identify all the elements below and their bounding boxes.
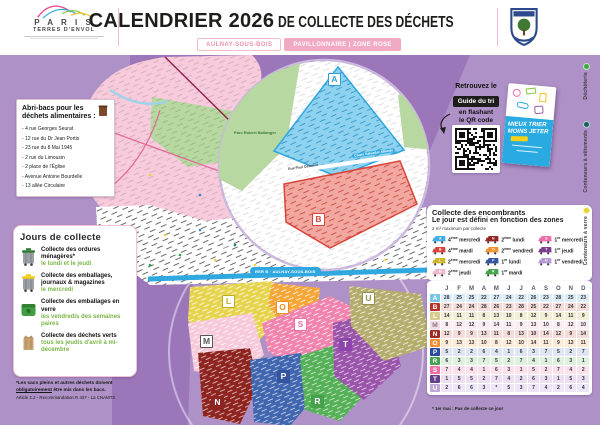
calendar-cell-M-3: 9 — [478, 321, 489, 329]
clothes-container-label: Conteneurs à vêtements — [583, 130, 589, 192]
collection-item-schedule: les vendredis des semaines paires — [41, 314, 130, 328]
brand-tagline-bar — [24, 36, 104, 37]
abri-bacs-address-list: 4 rue Georges Seurat 12 rue du Dr Jean P… — [22, 125, 109, 192]
calendar-cell-B-2: 24 — [466, 303, 477, 311]
calendar-cell-N-9: 12 — [553, 330, 564, 338]
calendar-cell-M-8: 10 — [540, 321, 551, 329]
calendar-cell-M-1: 12 — [453, 321, 464, 329]
calendar-row-M: M81212914119131081210 — [430, 321, 589, 329]
calendar-cell-B-8: 22 — [540, 303, 551, 311]
calendar-cell-S-11: 2 — [577, 366, 589, 374]
calendar-cell-O-8: 11 — [540, 339, 551, 347]
calendar-cell-S-4: 6 — [491, 366, 502, 374]
calendar-cell-R-2: 3 — [466, 357, 477, 365]
encombrants-legend-item-N: N2ème lundi — [485, 234, 537, 245]
calendar-cell-U-5: 5 — [503, 384, 514, 392]
calendar-cell-A-7: 26 — [528, 294, 539, 302]
calendar-cell-T-3: 2 — [478, 375, 489, 383]
truck-icon-M: M — [432, 268, 446, 277]
calendar-cell-A-6: 22 — [515, 294, 526, 302]
calendar-cell-M-6: 9 — [515, 321, 526, 329]
booklet-tag — [511, 136, 528, 141]
calendar-corner — [430, 284, 440, 293]
calendar-cell-L-3: 8 — [478, 312, 489, 320]
map-zone-badge-U: U — [362, 292, 375, 305]
calendar-cell-R-1: 3 — [453, 357, 464, 365]
calendar-cell-B-7: 25 — [528, 303, 539, 311]
calendar-cell-B-5: 23 — [503, 303, 514, 311]
calendar-cell-B-6: 28 — [515, 303, 526, 311]
calendar-cell-R-10: 3 — [565, 357, 576, 365]
calendar-cell-N-8: 14 — [540, 330, 551, 338]
truck-icon-P: P — [485, 257, 499, 266]
calendar-cell-U-1: 6 — [453, 384, 464, 392]
encombrants-legend-label: 1er lundi — [501, 258, 520, 266]
calendar-cell-N-10: 9 — [565, 330, 576, 338]
calendar-cell-U-0: 2 — [441, 384, 452, 392]
calendar-cell-T-2: 5 — [466, 375, 477, 383]
encombrants-legend-item-M: M2ème jeudi — [432, 267, 484, 278]
booklet-doodles — [506, 83, 557, 121]
clothes-container-icon — [583, 121, 590, 128]
calendar-cell-P-10: 2 — [565, 348, 576, 356]
calendar-cell-N-6: 13 — [515, 330, 526, 338]
encombrants-legend-label: 2ème jeudi — [448, 269, 471, 277]
calendar-zone-label-S: S — [430, 366, 440, 374]
encombrants-legend-item-L: L2ème mercredi — [432, 256, 484, 267]
calendar-cell-P-1: 2 — [453, 348, 464, 356]
calendar-cell-L-11: 9 — [577, 312, 589, 320]
calendar-cell-O-7: 14 — [528, 339, 539, 347]
calendar-row-B: B272424282623282522272422 — [430, 303, 589, 311]
calendar-cell-T-1: 5 — [453, 375, 464, 383]
truck-icon-S: S — [538, 235, 552, 244]
calendar-cell-R-11: 1 — [577, 357, 589, 365]
calendar-cell-M-10: 12 — [565, 321, 576, 329]
calendar-zone-label-U: U — [430, 384, 440, 392]
map-zone-badge-T: T — [339, 338, 352, 351]
map-zone-badge-A: A — [328, 73, 341, 86]
page-title: CALENDRIER 2026 — [89, 10, 275, 33]
calendar-cell-L-2: 11 — [466, 312, 477, 320]
calendar-month-4: M — [491, 284, 502, 293]
encombrants-legend-label: 2ème lundi — [501, 236, 524, 244]
collection-days-title: Jours de collecte — [20, 232, 130, 243]
footnote-line2: être mis dans les bacs. — [52, 388, 106, 393]
calendar-zone-label-A: A — [430, 294, 440, 302]
map-zone-badge-B: B — [312, 213, 325, 226]
calendar-month-10: N — [565, 284, 576, 293]
calendar-cell-N-0: 12 — [441, 330, 452, 338]
grey-bin-yellow-lid-icon — [20, 273, 37, 292]
calendar-cell-A-3: 22 — [478, 294, 489, 302]
truck-icon-O: O — [485, 246, 499, 255]
glass-container-label: Conteneurs à verre — [583, 216, 589, 265]
calendar-zone-label-R: R — [430, 357, 440, 365]
calendar-cell-M-11: 10 — [577, 321, 589, 329]
calendar-zone-label-T: T — [430, 375, 440, 383]
calendar-cell-T-10: 5 — [565, 375, 576, 383]
calendar-cell-S-5: 3 — [503, 366, 514, 374]
calendar-cell-O-2: 13 — [466, 339, 477, 347]
calendar-cell-B-3: 28 — [478, 303, 489, 311]
calendar-cell-M-9: 8 — [553, 321, 564, 329]
header-divider-right — [497, 8, 498, 46]
collection-days-panel: Jours de collecte Collecte des ordures m… — [13, 225, 137, 377]
collection-item-title: Collecte des emballages, journaux & maga… — [41, 273, 130, 287]
calendar-cell-U-11: 4 — [577, 384, 589, 392]
calendar-cell-L-1: 11 — [453, 312, 464, 320]
footnote-line3: Article 2.2 - Recommandation R 437 - La … — [16, 395, 115, 400]
truck-icon-N: N — [485, 235, 499, 244]
legend-conteneurs-verre: Conteneurs à verre — [577, 207, 595, 265]
qr-code — [452, 125, 500, 173]
title-block: CALENDRIER 2026 DE COLLECTE DES DÉCHETS … — [125, 10, 473, 51]
calendar-cell-R-8: 1 — [540, 357, 551, 365]
calendar-cell-T-8: 3 — [540, 375, 551, 383]
encombrants-legend-label: 1er jeudi — [554, 247, 573, 255]
bulky-waste-title: Collecte des encombrants — [432, 209, 587, 217]
calendar-month-3: A — [478, 284, 489, 293]
calendar-zone-label-O: O — [430, 339, 440, 347]
legend-dechetterie: Déchèterie — [577, 63, 595, 100]
main-area: Parc Robert Ballanger Rue Paul Cézanne C… — [0, 55, 600, 425]
park-label: Parc Robert Ballanger — [234, 131, 276, 136]
calendar-cell-B-9: 27 — [553, 303, 564, 311]
calendar-cell-P-4: 4 — [491, 348, 502, 356]
encombrants-legend-label: 1er mardi — [501, 269, 522, 277]
calendar-cell-B-1: 24 — [453, 303, 464, 311]
calendar-row-O: O913131081210141191311 — [430, 339, 589, 347]
calendar-cell-B-0: 27 — [441, 303, 452, 311]
abri-address: Avenue Antoine Bourdelle — [22, 173, 109, 183]
left-footnote: *Les sacs pleins et autres déchets doive… — [16, 380, 141, 402]
calendar-cell-B-4: 26 — [491, 303, 502, 311]
green-glass-container-icon — [20, 299, 37, 318]
calendar-cell-L-5: 10 — [503, 312, 514, 320]
calendar-cell-O-10: 13 — [565, 339, 576, 347]
calendar-cell-A-11: 23 — [577, 294, 589, 302]
calendar-cell-O-4: 8 — [491, 339, 502, 347]
abri-address: 2 place de l'Église — [22, 163, 109, 173]
calendar-row-L: L14111181310812914119 — [430, 312, 589, 320]
calendar-cell-O-11: 11 — [577, 339, 589, 347]
calendar-footnote: * 1er mai : Pas de collecte ce jour — [432, 406, 503, 411]
collection-item-household: Collecte des ordures ménagères* le lundi… — [20, 247, 130, 268]
calendar-cell-L-7: 12 — [528, 312, 539, 320]
calendar-cell-U-2: 6 — [466, 384, 477, 392]
calendar-cell-U-10: 6 — [565, 384, 576, 392]
calendar-zone-label-M: M — [430, 321, 440, 329]
dechetterie-icon — [583, 63, 590, 70]
truck-icon-T: T — [538, 246, 552, 255]
truck-icon-L: L — [432, 257, 446, 266]
calendar-cell-O-1: 13 — [453, 339, 464, 347]
calendar-cell-U-8: 4 — [540, 384, 551, 392]
encombrants-legend-label: 4ème mercredi — [448, 236, 480, 244]
calendar-cell-M-7: 13 — [528, 321, 539, 329]
calendar-cell-P-5: 1 — [503, 348, 514, 356]
collection-item-title: Collecte des emballages en verre — [41, 299, 130, 313]
calendar-cell-N-1: 9 — [453, 330, 464, 338]
guide-line1: Retrouvez le — [447, 83, 505, 90]
rer-b-line-label: RER B · AULNAY-SOUS-BOIS — [250, 267, 321, 275]
map-zone-badge-N: N — [211, 396, 224, 409]
calendar-cell-A-1: 25 — [453, 294, 464, 302]
truck-icon-A: A — [432, 235, 446, 244]
collection-item-title: Collecte des déchets verts — [41, 333, 130, 340]
glass-container-icon — [583, 207, 590, 214]
calendar-cell-R-0: 6 — [441, 357, 452, 365]
calendar-zone-label-N: N — [430, 330, 440, 338]
map-zone-badge-M: M — [200, 335, 213, 348]
booklet-title: MIEUX TRIER MOINS JETER — [508, 122, 550, 136]
calendar-month-8: S — [540, 284, 551, 293]
calendar-cell-U-4: * — [491, 384, 502, 392]
footnote-line1: *Les sacs pleins et autres déchets doive… — [16, 381, 113, 386]
abri-address: 2 rue du Limousin — [22, 154, 109, 164]
calendar-cell-P-8: 7 — [540, 348, 551, 356]
calendar-month-0: J — [441, 284, 452, 293]
calendar-month-9: O — [553, 284, 564, 293]
calendar-cell-M-2: 12 — [466, 321, 477, 329]
brand-tagline-bar2 — [30, 38, 98, 39]
calendar-cell-R-4: 5 — [491, 357, 502, 365]
calendar-month-header: JFMAMJJASOND — [430, 284, 589, 293]
calendar-row-A: A282525222724222623282523 — [430, 294, 589, 302]
calendar-cell-L-0: 14 — [441, 312, 452, 320]
calendar-cell-S-8: 2 — [540, 366, 551, 374]
abri-address: 13 allée Circulaire — [22, 182, 109, 192]
calendar-cell-B-11: 22 — [577, 303, 589, 311]
abri-address: 4 rue Georges Seurat — [22, 125, 109, 135]
encombrants-legend-label: 4ème mardi — [448, 247, 473, 255]
calendar-cell-P-7: 3 — [528, 348, 539, 356]
abri-bacs-title: Abri-bacs pour les déchets alimentaires … — [22, 105, 102, 121]
calendar-cell-S-10: 4 — [565, 366, 576, 374]
calendar-month-2: M — [466, 284, 477, 293]
abri-bacs-panel: Abri-bacs pour les déchets alimentaires … — [16, 99, 115, 197]
city-badge: AULNAY-SOUS-BOIS — [197, 38, 281, 51]
calendar-cell-P-3: 6 — [478, 348, 489, 356]
encombrants-legend-item-A: A4ème mercredi — [432, 234, 484, 245]
calendar-cell-N-3: 13 — [478, 330, 489, 338]
truck-icon-U: U — [538, 257, 552, 266]
calendar-poster: P A R I S TERRES D'ENVOL CALENDRIER 2026… — [0, 0, 600, 425]
calendar-cell-A-8: 23 — [540, 294, 551, 302]
encombrants-legend: A4ème mercrediB4ème mardiL2ème mercrediM… — [432, 234, 587, 278]
calendar-cell-N-4: 11 — [491, 330, 502, 338]
calendar-cell-R-5: 2 — [503, 357, 514, 365]
calendar-row-P: P522641637527 — [430, 348, 589, 356]
calendar-cell-S-9: 7 — [553, 366, 564, 374]
collection-item-glass: Collecte des emballages en verre les ven… — [20, 299, 130, 327]
collection-item-title: Collecte des ordures ménagères* — [41, 247, 130, 261]
truck-icon-B: B — [432, 246, 446, 255]
paper-bag-icon — [20, 333, 37, 352]
collection-item-green-waste: Collecte des déchets verts tous les jeud… — [20, 333, 130, 354]
calendar-cell-U-3: 3 — [478, 384, 489, 392]
encombrants-legend-item-B: B4ème mardi — [432, 245, 484, 256]
calendar-row-T: T155274263153 — [430, 375, 589, 383]
calendar-cell-L-9: 14 — [553, 312, 564, 320]
calendar-cell-A-0: 28 — [441, 294, 452, 302]
page-title-suffix: DE COLLECTE DES DÉCHETS — [278, 14, 454, 32]
bulky-waste-calendar: JFMAMJJASONDA282525222724222623282523B27… — [427, 281, 592, 395]
calendar-zone-label-P: P — [430, 348, 440, 356]
calendar-cell-P-6: 6 — [515, 348, 526, 356]
calendar-month-5: J — [503, 284, 514, 293]
calendar-month-1: F — [453, 284, 464, 293]
calendar-cell-T-9: 1 — [553, 375, 564, 383]
calendar-table: JFMAMJJASONDA282525222724222623282523B27… — [429, 283, 590, 393]
abri-address: 23 rue du 8 Mai 1945 — [22, 144, 109, 154]
grey-bin-green-lid-icon — [20, 247, 37, 266]
calendar-zone-label-L: L — [430, 312, 440, 320]
map-zone-badge-L: L — [222, 295, 235, 308]
bulky-waste-note: 2 m³ maximum par collecte — [432, 226, 587, 231]
calendar-cell-U-7: 7 — [528, 384, 539, 392]
calendar-cell-A-9: 28 — [553, 294, 564, 302]
calendar-cell-M-4: 14 — [491, 321, 502, 329]
calendar-cell-S-3: 1 — [478, 366, 489, 374]
dechetterie-label: Déchèterie — [583, 72, 589, 100]
encombrants-legend-label: 2ème vendredi — [501, 247, 533, 255]
calendar-cell-P-11: 7 — [577, 348, 589, 356]
calendar-cell-P-9: 5 — [553, 348, 564, 356]
calendar-cell-A-2: 25 — [466, 294, 477, 302]
encombrants-legend-item-P: P1er lundi — [485, 256, 537, 267]
map-zone-badge-R: R — [311, 395, 324, 408]
encombrants-legend-item-O: O2ème vendredi — [485, 245, 537, 256]
brand-arcs-icon — [33, 5, 95, 19]
map-zone-badge-S: S — [294, 318, 307, 331]
svg-text:O: O — [492, 248, 495, 252]
calendar-cell-T-5: 4 — [503, 375, 514, 383]
sorting-guide-promo: Retrouvez le Guide du tri en flashant le… — [447, 83, 505, 125]
encombrants-legend-label: 2ème mercredi — [448, 258, 480, 266]
calendar-cell-T-0: 1 — [441, 375, 452, 383]
calendar-month-11: D — [577, 284, 589, 293]
collection-item-schedule: tous les jeudis d'avril à mi-décembre — [41, 340, 130, 354]
bulky-waste-panel: Collecte des encombrants Le jour est déf… — [427, 205, 592, 281]
abri-address: 12 rue du Dr Jean Portis — [22, 135, 109, 145]
encombrants-legend-item-R: R1er mardi — [485, 267, 537, 278]
calendar-cell-R-9: 6 — [553, 357, 564, 365]
calendar-cell-N-2: 9 — [466, 330, 477, 338]
collection-item-schedule: le mercredi — [41, 287, 130, 294]
calendar-row-N: N12991311813101412914 — [430, 330, 589, 338]
curved-arrow-icon — [436, 113, 452, 135]
calendar-cell-S-6: 1 — [515, 366, 526, 374]
calendar-cell-S-2: 4 — [466, 366, 477, 374]
map-zone-badge-P: P — [277, 370, 290, 383]
calendar-cell-M-0: 8 — [441, 321, 452, 329]
calendar-cell-O-3: 10 — [478, 339, 489, 347]
header: P A R I S TERRES D'ENVOL CALENDRIER 2026… — [0, 0, 600, 55]
city-crest-icon — [508, 7, 540, 47]
collection-item-schedule: le lundi et le jeudi — [41, 261, 130, 268]
guide-badge: Guide du tri — [453, 96, 499, 107]
calendar-cell-U-9: 2 — [553, 384, 564, 392]
calendar-cell-B-10: 24 — [565, 303, 576, 311]
calendar-cell-T-11: 3 — [577, 375, 589, 383]
calendar-cell-M-5: 11 — [503, 321, 514, 329]
calendar-month-7: A — [528, 284, 539, 293]
bulky-waste-subtitle: Le jour est défini en fonction des zones — [432, 217, 587, 225]
guide-line2: en flashant — [447, 109, 505, 117]
legend-conteneurs-vetements: Conteneurs à vêtements — [577, 121, 595, 192]
calendar-cell-O-5: 12 — [503, 339, 514, 347]
calendar-cell-A-10: 25 — [565, 294, 576, 302]
calendar-cell-N-11: 14 — [577, 330, 589, 338]
calendar-row-R: R633752741631 — [430, 357, 589, 365]
calendar-cell-T-4: 7 — [491, 375, 502, 383]
calendar-cell-S-0: 7 — [441, 366, 452, 374]
calendar-cell-A-4: 27 — [491, 294, 502, 302]
truck-icon-R: R — [485, 268, 499, 277]
sorting-guide-booklet: MIEUX TRIER MOINS JETER — [502, 83, 557, 167]
calendar-cell-T-7: 6 — [528, 375, 539, 383]
calendar-cell-O-0: 9 — [441, 339, 452, 347]
calendar-cell-A-5: 24 — [503, 294, 514, 302]
calendar-row-U: U2663*5374264 — [430, 384, 589, 392]
calendar-cell-L-10: 11 — [565, 312, 576, 320]
calendar-cell-L-8: 9 — [540, 312, 551, 320]
calendar-cell-R-6: 7 — [515, 357, 526, 365]
calendar-cell-T-6: 2 — [515, 375, 526, 383]
calendar-cell-R-3: 7 — [478, 357, 489, 365]
calendar-cell-P-2: 2 — [466, 348, 477, 356]
calendar-row-S: S744163152742 — [430, 366, 589, 374]
calendar-cell-S-1: 4 — [453, 366, 464, 374]
calendar-zone-label-B: B — [430, 303, 440, 311]
calendar-cell-O-6: 10 — [515, 339, 526, 347]
zone-badge: PAVILLONNAIRE | ZONE ROSE — [284, 38, 400, 51]
calendar-cell-R-7: 4 — [528, 357, 539, 365]
calendar-cell-N-7: 10 — [528, 330, 539, 338]
calendar-cell-L-4: 13 — [491, 312, 502, 320]
calendar-cell-N-5: 8 — [503, 330, 514, 338]
map-zone-badge-O: O — [276, 301, 289, 314]
footnote-underlined-word: obligatoirement — [16, 388, 52, 393]
calendar-cell-P-0: 5 — [441, 348, 452, 356]
calendar-cell-U-6: 3 — [515, 384, 526, 392]
calendar-cell-O-9: 9 — [553, 339, 564, 347]
collection-item-packaging: Collecte des emballages, journaux & maga… — [20, 273, 130, 294]
food-waste-bin-icon — [98, 104, 108, 117]
calendar-cell-S-7: 5 — [528, 366, 539, 374]
svg-text:M: M — [439, 270, 442, 274]
calendar-month-6: J — [515, 284, 526, 293]
calendar-cell-L-6: 8 — [515, 312, 526, 320]
